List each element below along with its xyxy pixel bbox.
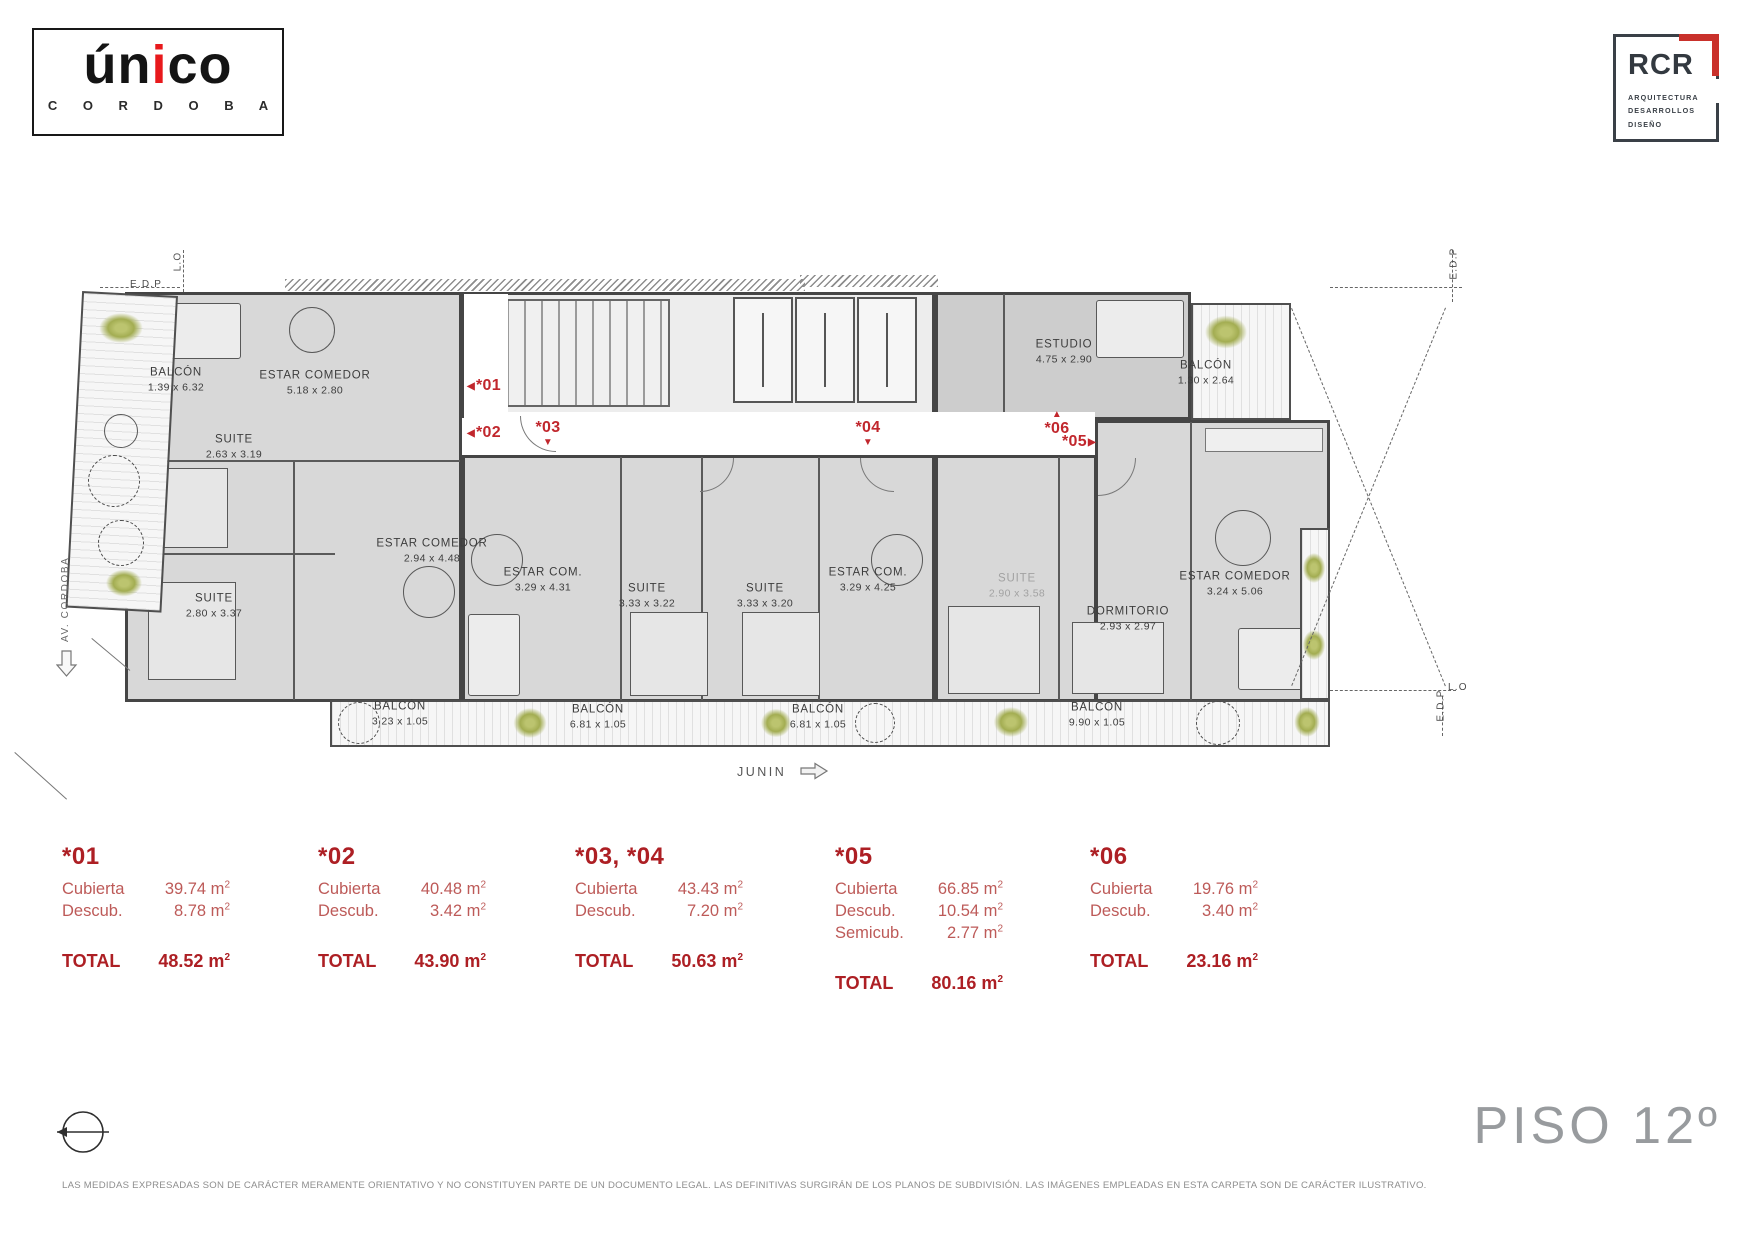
floor-title: PISO 12º	[1473, 1096, 1721, 1156]
unit-marker: *04▼	[850, 419, 886, 448]
street-label-av-cordoba: AV. CORDOBA	[60, 557, 71, 642]
elevator	[733, 297, 793, 403]
room-dimensions: 2.63 x 3.19	[206, 448, 262, 463]
compass-icon	[55, 1102, 111, 1158]
dining-table	[1215, 510, 1271, 566]
room-name: SUITE	[619, 581, 675, 597]
room-name: BALCÓN	[148, 365, 204, 381]
room-dimensions: 6.81 x 1.05	[570, 718, 626, 733]
area-row: Cubierta43.43 m2	[575, 880, 743, 899]
room-label: SUITE3.33 x 3.22	[619, 581, 675, 612]
neighbor-wall-hatch	[285, 279, 805, 291]
room-label: BALCÓN6.81 x 1.05	[790, 702, 846, 733]
room-name: BALCÓN	[570, 702, 626, 718]
unit-direction-triangle-icon: ▼	[863, 437, 873, 448]
room-label: ESTUDIO4.75 x 2.90	[1036, 337, 1093, 368]
room-name: BALCÓN	[1178, 358, 1234, 374]
room-dimensions: 3.29 x 4.25	[829, 581, 908, 596]
room-dimensions: 9.90 x 1.05	[1069, 716, 1125, 731]
area-row: Cubierta19.76 m2	[1090, 880, 1258, 899]
room-dimensions: 2.93 x 2.97	[1087, 620, 1170, 635]
room-name: ESTAR COMEDOR	[259, 368, 370, 384]
room-label: BALCÓN1.30 x 2.64	[1178, 358, 1234, 389]
unit-number: *02	[476, 424, 501, 441]
unit-number: *03	[536, 419, 561, 437]
unit-direction-triangle-icon: ▼	[543, 437, 553, 448]
room-label: BALCÓN6.81 x 1.05	[570, 702, 626, 733]
unit-number: *05	[1062, 433, 1087, 450]
room-label: ESTAR COM.3.29 x 4.31	[504, 565, 583, 596]
tree	[1196, 701, 1240, 745]
planter-pot	[104, 414, 138, 448]
room-dimensions: 3.23 x 1.05	[372, 715, 428, 730]
cordoba-direction-arrow-icon	[56, 650, 78, 678]
elevator	[857, 297, 917, 403]
site-boundary-line	[1330, 287, 1462, 288]
unit-id: *01	[62, 843, 230, 871]
bed	[948, 606, 1040, 694]
room-label: SUITE2.90 x 3.58	[989, 571, 1045, 602]
room-name: ESTAR COM.	[829, 565, 908, 581]
room-name: DORMITORIO	[1087, 604, 1170, 620]
boundary-label: E.D.P	[1449, 247, 1460, 279]
unit-direction-triangle-icon: ▶	[1088, 437, 1096, 448]
room-label: ESTAR COMEDOR3.24 x 5.06	[1179, 569, 1290, 600]
wall-divider	[1058, 457, 1060, 700]
area-row: Descub.10.54 m2	[835, 902, 1003, 921]
room-name: BALCÓN	[372, 699, 428, 715]
room-label: BALCÓN3.23 x 1.05	[372, 699, 428, 730]
area-row: Descub.8.78 m2	[62, 902, 230, 921]
boundary-label: L.O	[1448, 682, 1468, 693]
room-dimensions: 6.81 x 1.05	[790, 718, 846, 733]
boundary-label: E.D.P	[1436, 689, 1447, 721]
area-total-row: TOTAL50.63 m2	[575, 951, 743, 972]
unit-id: *06	[1090, 843, 1258, 871]
wall-divider	[1003, 294, 1005, 418]
unit-number: *01	[476, 377, 501, 394]
brochure-page: único C O R D O B A RCR ARQUITECTURA DES…	[0, 0, 1755, 1240]
room-name: ESTAR COMEDOR	[376, 536, 487, 552]
wall-divider	[1190, 422, 1192, 700]
room-name: SUITE	[989, 571, 1045, 587]
dining-table	[289, 307, 335, 353]
area-table: *03, *04Cubierta43.43 m2Descub.7.20 m2TO…	[575, 843, 743, 972]
room-dimensions: 3.33 x 3.20	[737, 597, 793, 612]
leader-line	[14, 752, 67, 800]
tree	[88, 455, 140, 507]
room-dimensions: 1.39 x 6.32	[148, 381, 204, 396]
area-total-row: TOTAL48.52 m2	[62, 951, 230, 972]
bed	[742, 612, 820, 696]
area-row: Cubierta40.48 m2	[318, 880, 486, 899]
sofa	[468, 614, 520, 696]
street-label-junin: JUNIN	[737, 765, 786, 779]
room-name: SUITE	[186, 591, 242, 607]
room-label: ESTAR COM.3.29 x 4.25	[829, 565, 908, 596]
room-label: SUITE3.33 x 3.20	[737, 581, 793, 612]
room-dimensions: 2.94 x 4.48	[376, 552, 487, 567]
area-row: Semicub.2.77 m2	[835, 924, 1003, 943]
room-name: SUITE	[737, 581, 793, 597]
area-total-row: TOTAL23.16 m2	[1090, 951, 1258, 972]
boundary-label: L.O	[172, 252, 183, 272]
tree	[98, 520, 144, 566]
unit-id: *03, *04	[575, 843, 743, 871]
bed	[630, 612, 708, 696]
room-label: BALCÓN9.90 x 1.05	[1069, 700, 1125, 731]
room-name: BALCÓN	[790, 702, 846, 718]
room-label: DORMITORIO2.93 x 2.97	[1087, 604, 1170, 635]
area-table: *02Cubierta40.48 m2Descub.3.42 m2TOTAL43…	[318, 843, 486, 972]
room-name: ESTUDIO	[1036, 337, 1093, 353]
area-row: Descub.7.20 m2	[575, 902, 743, 921]
wall-divider	[620, 457, 622, 700]
unit-direction-triangle-icon: ▲	[1052, 409, 1062, 420]
unit-marker: *05▶	[1062, 433, 1097, 451]
floor-plan: JUNIN AV. CORDOBA BALCÓN1.39 x 6.32ESTAR…	[0, 0, 1755, 1240]
stairs	[505, 299, 670, 407]
area-total-row: TOTAL43.90 m2	[318, 951, 486, 972]
unit-marker: ◀*02	[466, 424, 501, 442]
room-dimensions: 2.80 x 3.37	[186, 607, 242, 622]
room-label: ESTAR COMEDOR5.18 x 2.80	[259, 368, 370, 399]
area-table: *06Cubierta19.76 m2Descub.3.40 m2TOTAL23…	[1090, 843, 1258, 972]
room-dimensions: 2.90 x 3.58	[989, 587, 1045, 602]
wall-divider	[293, 460, 295, 700]
sofa	[1096, 300, 1184, 358]
room-label: ESTAR COMEDOR2.94 x 4.48	[376, 536, 487, 567]
unit-marker: *03▼	[530, 419, 566, 448]
room-dimensions: 5.18 x 2.80	[259, 384, 370, 399]
dining-table	[403, 566, 455, 618]
room-name: ESTAR COM.	[504, 565, 583, 581]
neighbor-wall-hatch	[800, 275, 938, 287]
area-row: Cubierta66.85 m2	[835, 880, 1003, 899]
room-dimensions: 1.30 x 2.64	[1178, 374, 1234, 389]
area-total-row: TOTAL80.16 m2	[835, 973, 1003, 994]
area-table: *01Cubierta39.74 m2Descub.8.78 m2TOTAL48…	[62, 843, 230, 972]
disclaimer-text: LAS MEDIDAS EXPRESADAS SON DE CARÁCTER M…	[62, 1180, 1427, 1191]
room-dimensions: 3.33 x 3.22	[619, 597, 675, 612]
room-label: BALCÓN1.39 x 6.32	[148, 365, 204, 396]
elevator	[795, 297, 855, 403]
area-row: Descub.3.40 m2	[1090, 902, 1258, 921]
room-name: SUITE	[206, 432, 262, 448]
unit-id: *02	[318, 843, 486, 871]
room-label: SUITE2.63 x 3.19	[206, 432, 262, 463]
unit-number: *04	[856, 419, 881, 437]
unit-direction-triangle-icon: ◀	[467, 428, 475, 439]
boundary-label: E.D.P	[130, 279, 162, 290]
area-row: Descub.3.42 m2	[318, 902, 486, 921]
unit-id: *05	[835, 843, 1003, 871]
area-row: Cubierta39.74 m2	[62, 880, 230, 899]
junin-direction-arrow-icon	[800, 762, 830, 780]
unit-marker: ◀*01	[466, 377, 501, 395]
room-dimensions: 3.29 x 4.31	[504, 581, 583, 596]
room-name: BALCÓN	[1069, 700, 1125, 716]
unit-direction-triangle-icon: ◀	[467, 381, 475, 392]
area-table: *05Cubierta66.85 m2Descub.10.54 m2Semicu…	[835, 843, 1003, 994]
room-dimensions: 3.24 x 5.06	[1179, 585, 1290, 600]
room-label: SUITE2.80 x 3.37	[186, 591, 242, 622]
room-dimensions: 4.75 x 2.90	[1036, 353, 1093, 368]
room-name: ESTAR COMEDOR	[1179, 569, 1290, 585]
tree	[855, 703, 895, 743]
kitchen-counter	[1205, 428, 1323, 452]
